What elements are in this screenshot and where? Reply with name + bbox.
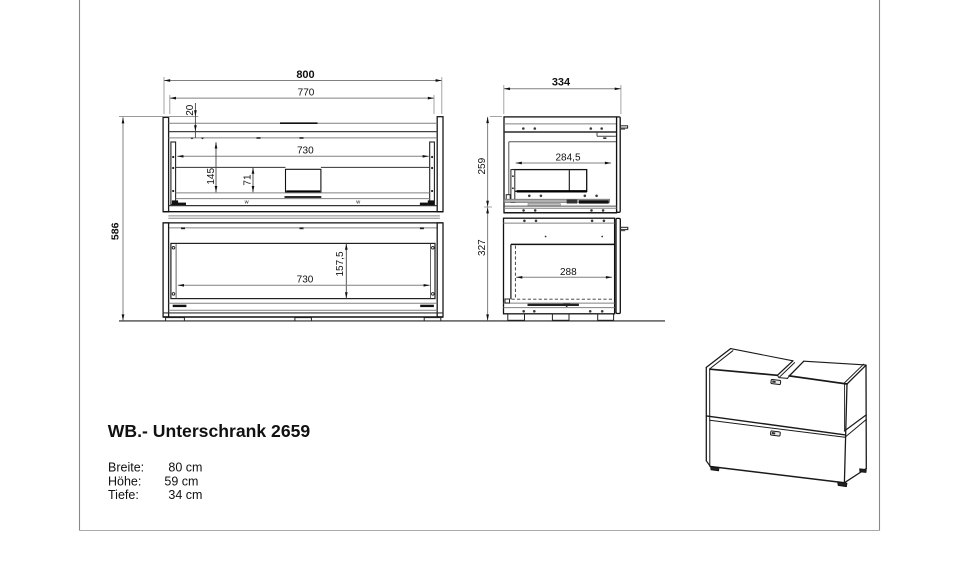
svg-text:Tiefe:: Tiefe:: [108, 488, 139, 502]
svg-text:327: 327: [477, 239, 488, 256]
svg-text:284,5: 284,5: [555, 152, 580, 163]
svg-text:730: 730: [297, 146, 314, 157]
svg-text:334: 334: [552, 76, 571, 88]
svg-text:800: 800: [296, 69, 314, 81]
svg-text:80 cm: 80 cm: [168, 461, 202, 475]
svg-text:34 cm: 34 cm: [168, 488, 202, 502]
svg-text:Höhe:: Höhe:: [108, 474, 141, 488]
svg-text:730: 730: [297, 275, 314, 286]
svg-text:Breite:: Breite:: [108, 461, 144, 475]
svg-text:w: w: [355, 199, 360, 205]
svg-text:w: w: [244, 199, 249, 205]
svg-text:586: 586: [110, 222, 122, 240]
svg-text:59 cm: 59 cm: [164, 474, 198, 488]
svg-text:259: 259: [477, 157, 488, 174]
svg-text:WB.- Unterschrank 2659: WB.- Unterschrank 2659: [108, 421, 311, 441]
svg-text:20: 20: [185, 104, 196, 116]
svg-text:770: 770: [298, 88, 315, 99]
svg-text:145: 145: [206, 168, 217, 185]
svg-text:157,5: 157,5: [335, 251, 346, 276]
svg-text:71: 71: [243, 174, 254, 186]
svg-text:288: 288: [560, 267, 577, 278]
